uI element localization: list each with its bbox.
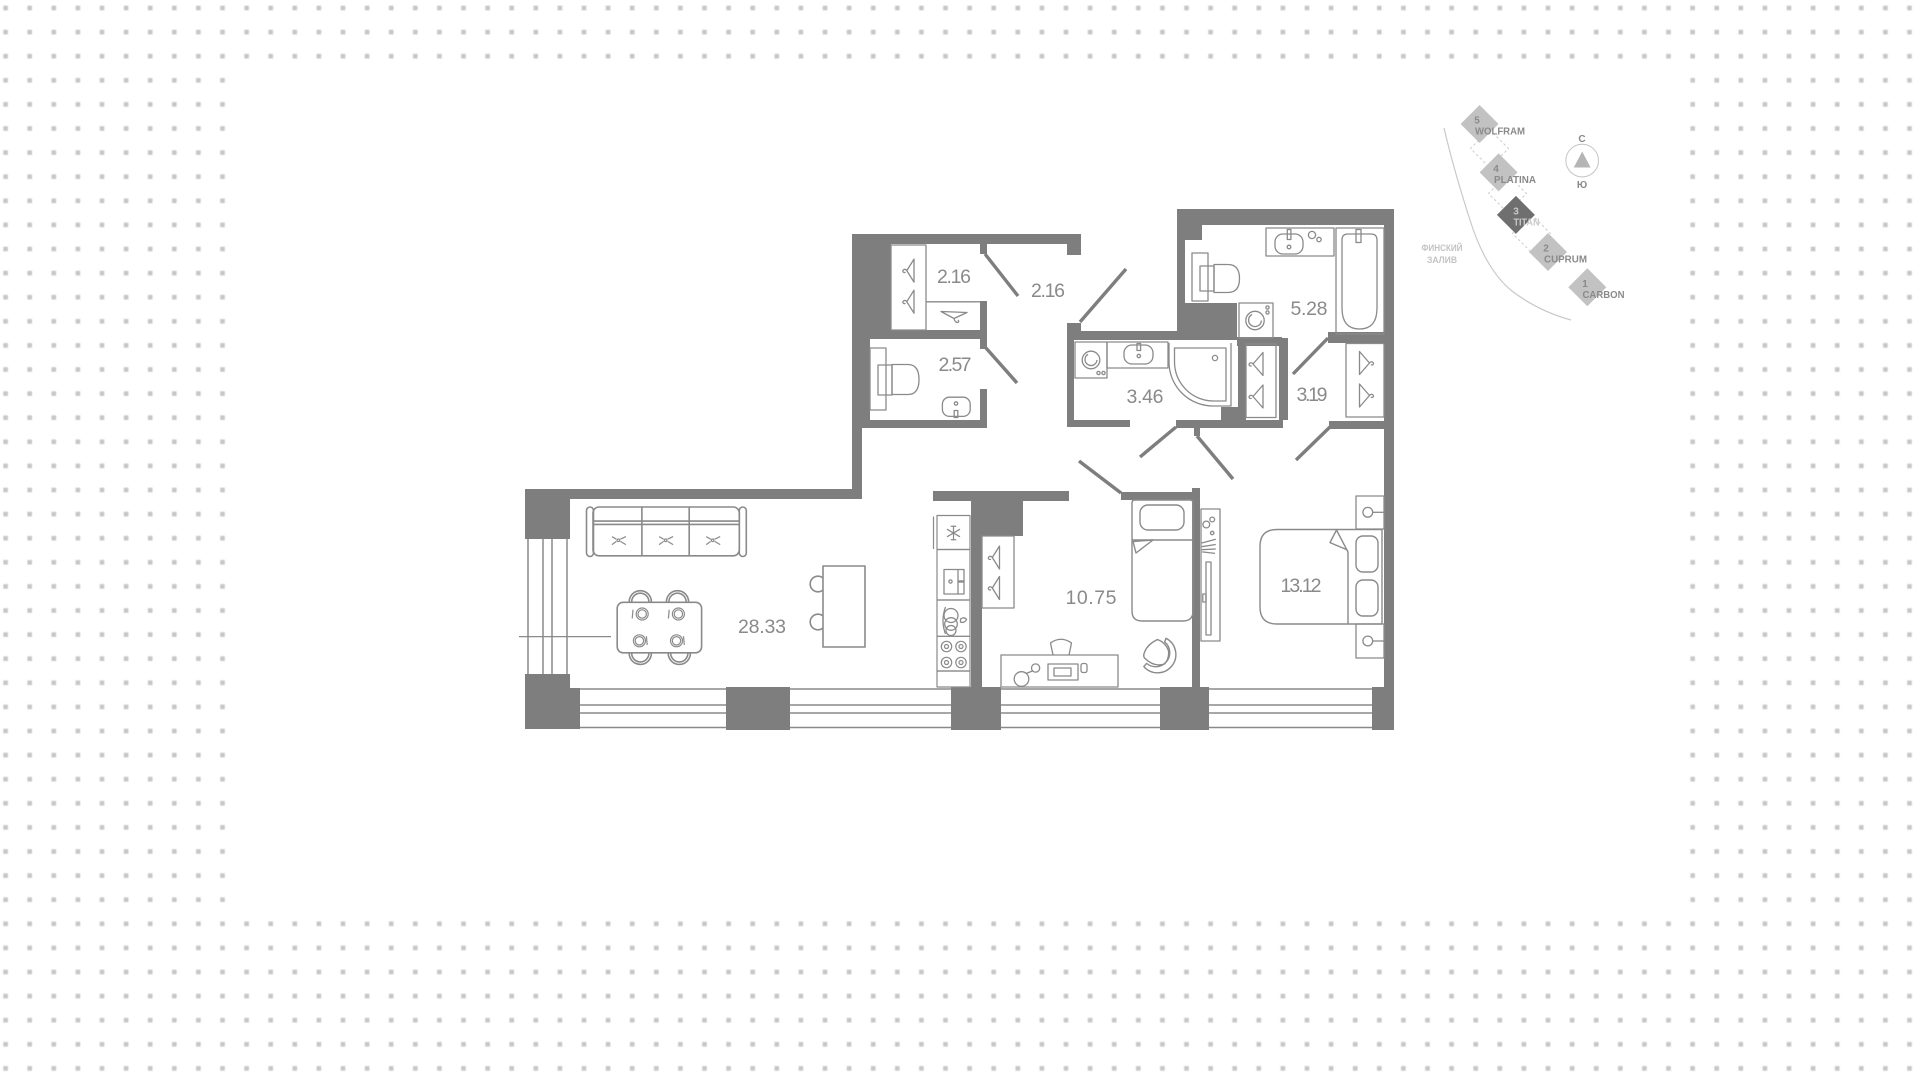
svg-text:CARBON: CARBON bbox=[1583, 290, 1625, 301]
svg-text:CUPRUM: CUPRUM bbox=[1544, 255, 1587, 266]
svg-text:WOLFRAM: WOLFRAM bbox=[1475, 127, 1525, 138]
svg-text:ФИНСКИЙ: ФИНСКИЙ bbox=[1422, 242, 1463, 253]
svg-text:3.46: 3.46 bbox=[1127, 386, 1164, 408]
svg-text:2.16: 2.16 bbox=[937, 266, 971, 288]
svg-text:2.16: 2.16 bbox=[1031, 280, 1065, 302]
svg-text:2.57: 2.57 bbox=[939, 354, 972, 376]
svg-text:PLATINA: PLATINA bbox=[1494, 175, 1536, 186]
svg-text:Ю: Ю bbox=[1577, 180, 1587, 191]
svg-text:28.33: 28.33 bbox=[738, 616, 786, 638]
svg-text:3: 3 bbox=[1513, 207, 1519, 218]
svg-text:5: 5 bbox=[1474, 116, 1480, 127]
svg-text:2: 2 bbox=[1543, 244, 1549, 255]
svg-text:4: 4 bbox=[1493, 164, 1499, 175]
svg-text:5.28: 5.28 bbox=[1291, 298, 1328, 320]
svg-text:ЗАЛИВ: ЗАЛИВ bbox=[1427, 255, 1457, 265]
svg-text:13.12: 13.12 bbox=[1281, 575, 1322, 597]
svg-text:С: С bbox=[1578, 134, 1585, 145]
svg-text:3.19: 3.19 bbox=[1297, 384, 1328, 406]
svg-text:TITAN: TITAN bbox=[1514, 218, 1540, 229]
svg-text:10.75: 10.75 bbox=[1066, 587, 1117, 609]
svg-text:1: 1 bbox=[1582, 279, 1588, 290]
